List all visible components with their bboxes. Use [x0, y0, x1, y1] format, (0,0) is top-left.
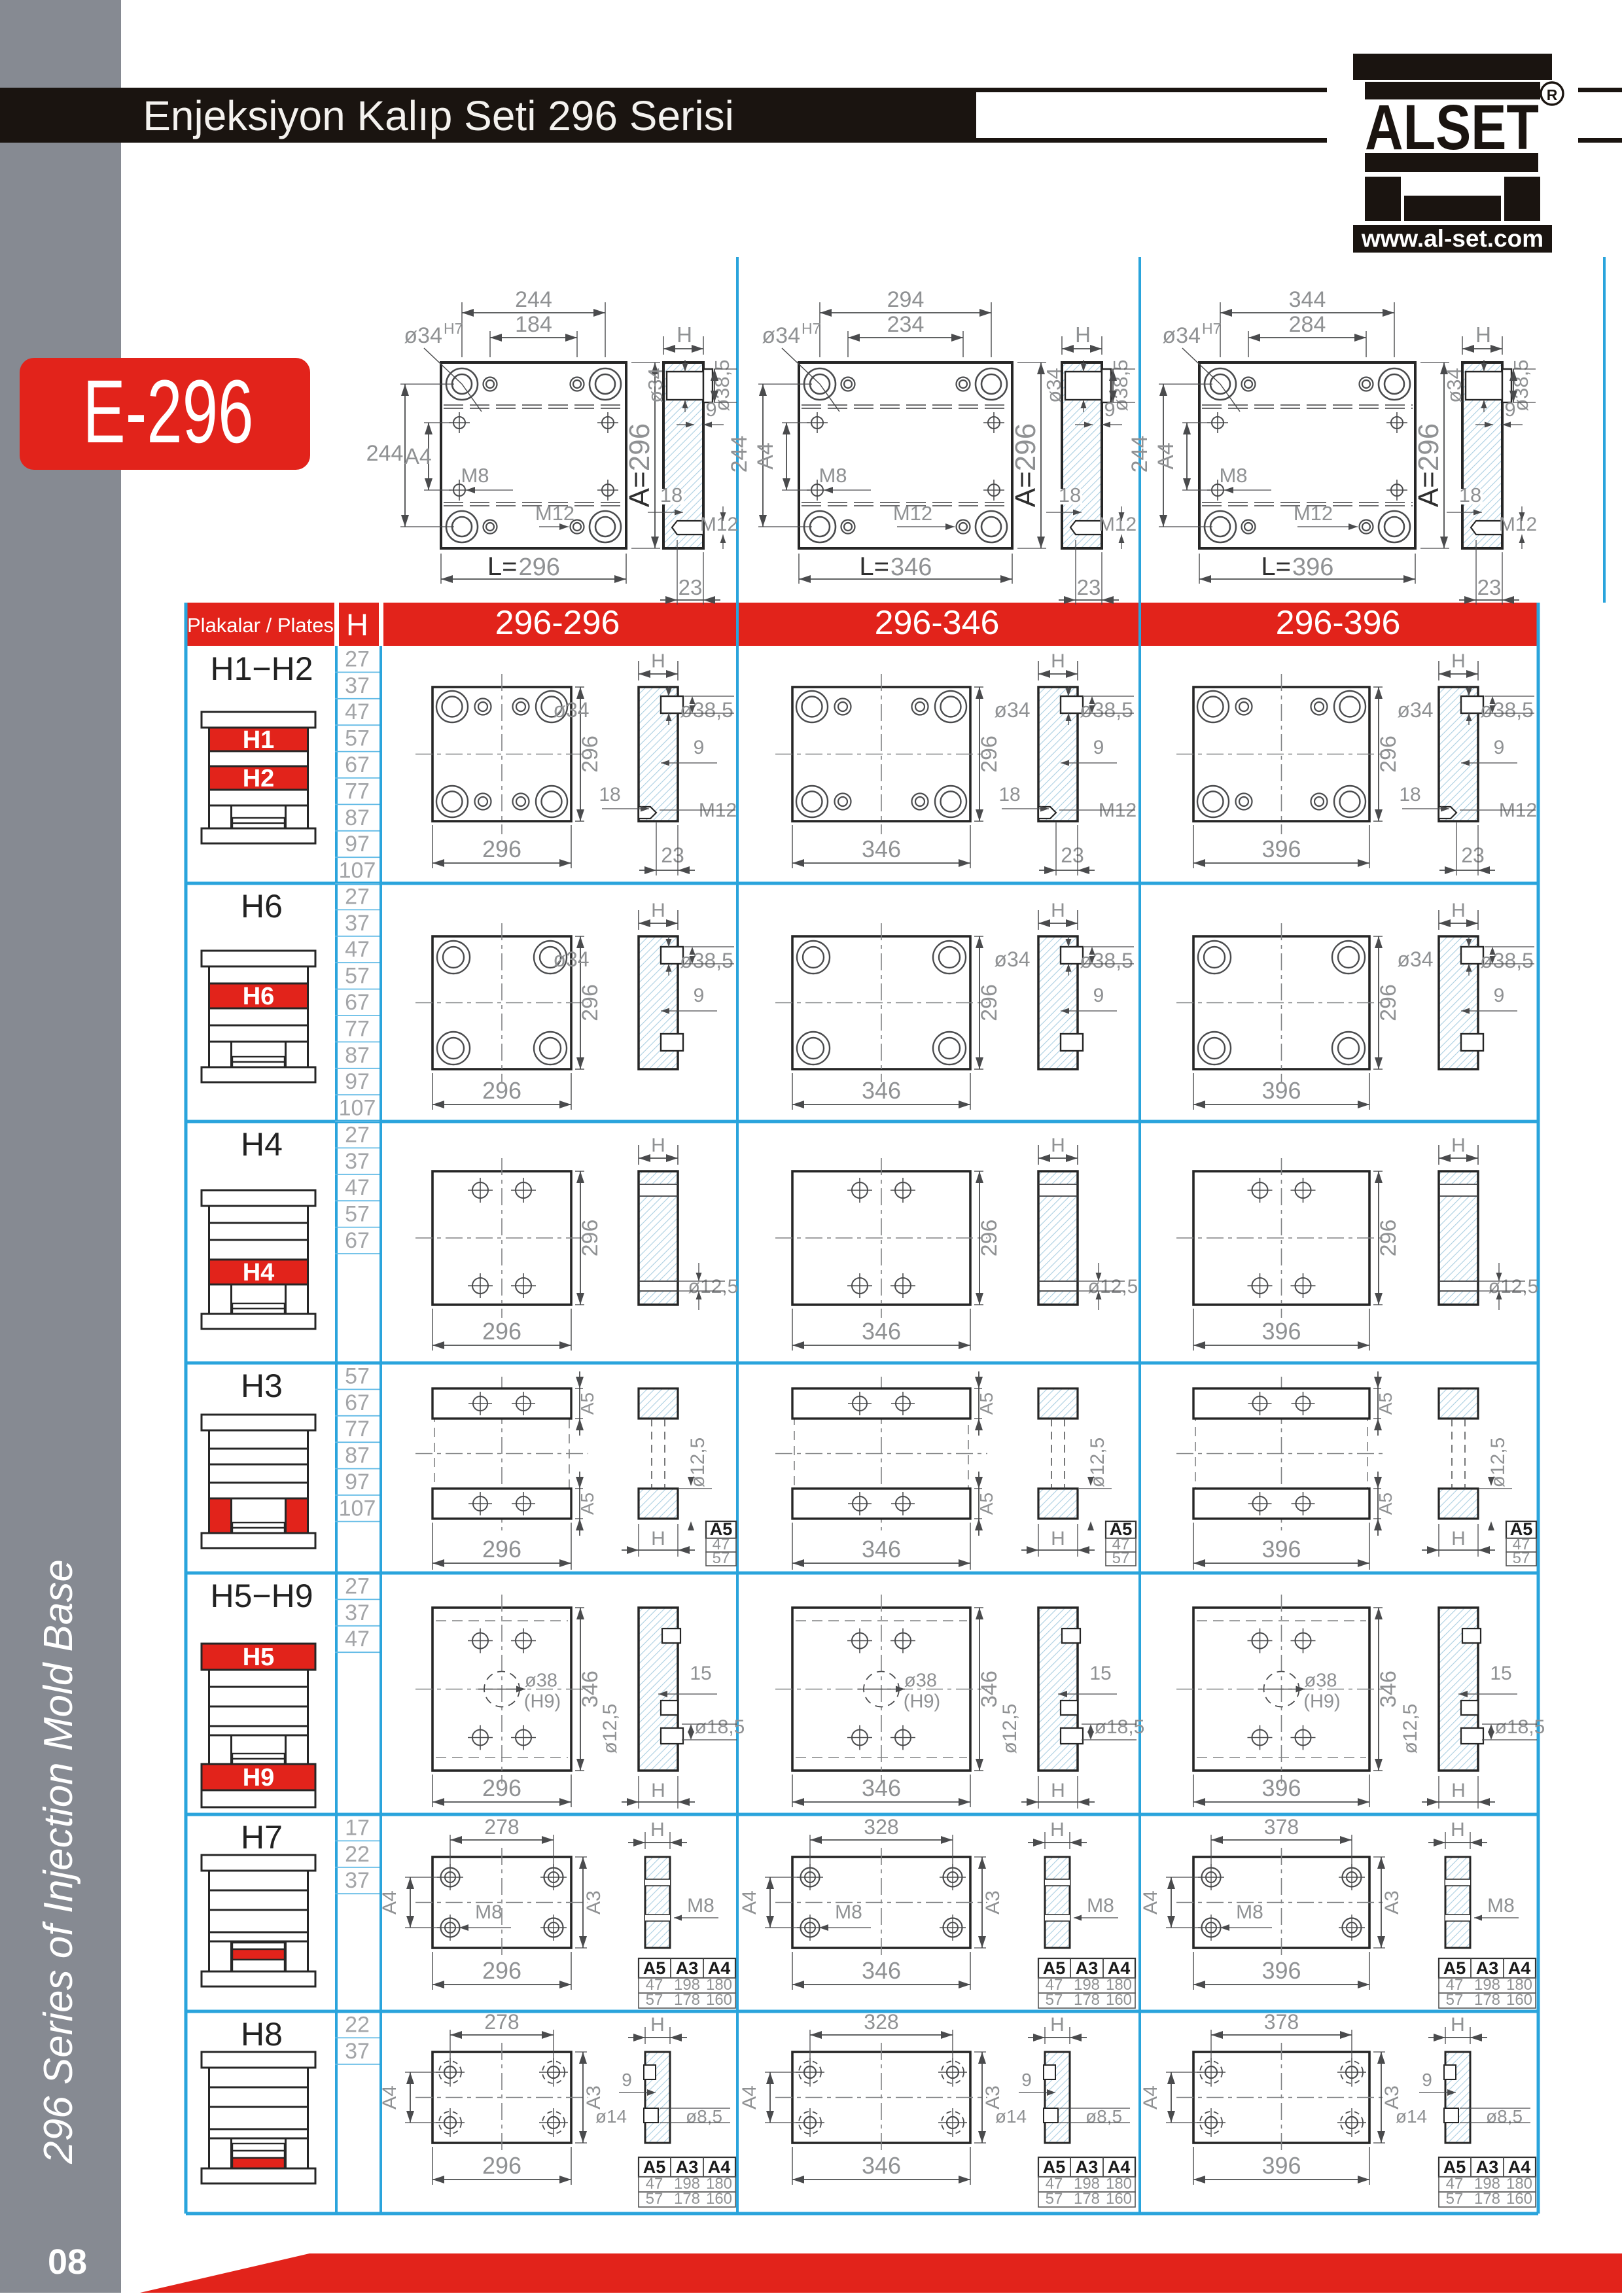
- svg-text:ø38: ø38: [904, 1670, 937, 1691]
- svg-text:107: 107: [339, 1496, 376, 1521]
- svg-text:(H9): (H9): [1303, 1691, 1340, 1712]
- svg-text:ø34: ø34: [1162, 323, 1201, 348]
- svg-text:396: 396: [1261, 1536, 1301, 1563]
- svg-text:296: 296: [482, 1318, 521, 1345]
- svg-text:H4: H4: [241, 1126, 283, 1163]
- svg-text:296: 296: [578, 1220, 603, 1257]
- svg-text:H: H: [1451, 2014, 1465, 2036]
- svg-text:18: 18: [1399, 784, 1420, 805]
- svg-text:9: 9: [1422, 2070, 1432, 2090]
- svg-text:18: 18: [1059, 484, 1081, 506]
- svg-text:H5−H9: H5−H9: [210, 1578, 313, 1614]
- svg-text:ø34: ø34: [553, 698, 589, 722]
- svg-text:H: H: [1051, 1135, 1065, 1156]
- svg-text:18: 18: [660, 484, 682, 506]
- svg-text:27: 27: [345, 1574, 370, 1598]
- svg-text:A=296: A=296: [624, 423, 656, 507]
- svg-text:H: H: [1050, 2014, 1065, 2036]
- svg-text:M8: M8: [475, 1901, 502, 1923]
- svg-text:ø14: ø14: [595, 2106, 627, 2127]
- svg-text:378: 378: [1264, 2010, 1299, 2034]
- svg-text:9: 9: [694, 737, 705, 758]
- svg-text:L=: L=: [487, 552, 518, 581]
- svg-text:A4: A4: [739, 2085, 760, 2110]
- svg-text:A=296: A=296: [1413, 423, 1445, 507]
- svg-text:57: 57: [1112, 1549, 1130, 1567]
- svg-text:23: 23: [1077, 575, 1101, 599]
- svg-text:A4: A4: [1108, 2157, 1131, 2177]
- svg-text:396: 396: [1261, 1077, 1301, 1104]
- svg-text:97: 97: [345, 1470, 370, 1494]
- svg-text:47: 47: [345, 937, 370, 962]
- svg-text:296: 296: [519, 554, 560, 581]
- svg-text:396: 396: [1261, 1775, 1301, 1801]
- svg-text:H: H: [651, 1135, 665, 1156]
- svg-text:77: 77: [345, 1417, 370, 1441]
- svg-text:27: 27: [345, 646, 370, 671]
- svg-text:15: 15: [1490, 1663, 1511, 1684]
- svg-text:160: 160: [1506, 1991, 1532, 2009]
- svg-text:97: 97: [345, 1069, 370, 1094]
- svg-text:396: 396: [1261, 1957, 1301, 1984]
- svg-text:A4: A4: [1508, 1958, 1531, 1978]
- svg-text:57: 57: [1046, 1991, 1063, 2009]
- svg-text:328: 328: [864, 2010, 898, 2034]
- svg-text:E-296: E-296: [83, 362, 254, 462]
- svg-text:ALSET: ALSET: [1365, 92, 1539, 163]
- svg-text:M8: M8: [687, 1895, 714, 1916]
- svg-text:296: 296: [482, 1957, 521, 1984]
- svg-text:37: 37: [345, 2039, 370, 2064]
- svg-text:9: 9: [1093, 985, 1104, 1006]
- svg-text:M8: M8: [1087, 1895, 1114, 1916]
- svg-text:A4: A4: [708, 1958, 731, 1978]
- svg-text:A=296: A=296: [1010, 423, 1042, 507]
- svg-text:A3: A3: [982, 1890, 1004, 1915]
- svg-text:H: H: [1051, 1780, 1065, 1801]
- svg-text:346: 346: [1376, 1670, 1401, 1708]
- svg-text:47: 47: [345, 1175, 370, 1200]
- svg-text:H: H: [651, 650, 665, 672]
- svg-text:57: 57: [1446, 1991, 1464, 2009]
- svg-text:296-346: 296-346: [875, 604, 1000, 642]
- svg-text:A4: A4: [1154, 442, 1178, 470]
- svg-text:L=: L=: [1261, 552, 1291, 581]
- svg-text:ø38: ø38: [525, 1670, 557, 1691]
- svg-text:H: H: [677, 323, 692, 347]
- svg-text:A5: A5: [1443, 2157, 1466, 2177]
- svg-text:9: 9: [1504, 398, 1515, 421]
- svg-text:296-396: 296-396: [1276, 604, 1401, 642]
- svg-text:A5: A5: [1043, 2157, 1066, 2177]
- svg-text:346: 346: [977, 1670, 1002, 1708]
- svg-text:ø34: ø34: [994, 947, 1030, 971]
- svg-text:A3: A3: [676, 2157, 699, 2177]
- svg-text:H2: H2: [243, 765, 275, 792]
- svg-text:H: H: [651, 900, 665, 921]
- svg-text:294: 294: [887, 287, 925, 312]
- svg-text:H: H: [346, 607, 368, 642]
- svg-text:M12: M12: [1499, 514, 1537, 535]
- svg-text:178: 178: [1074, 2190, 1100, 2208]
- svg-text:77: 77: [345, 779, 370, 804]
- svg-text:107: 107: [339, 858, 376, 883]
- svg-text:23: 23: [1477, 575, 1502, 599]
- svg-text:A4: A4: [379, 1890, 400, 1915]
- svg-text:H: H: [651, 1780, 665, 1801]
- svg-text:87: 87: [345, 1443, 370, 1468]
- svg-text:M8: M8: [1236, 1901, 1263, 1923]
- svg-text:M8: M8: [835, 1901, 862, 1923]
- svg-text:9: 9: [705, 398, 716, 421]
- svg-text:M12: M12: [700, 514, 738, 535]
- svg-text:244: 244: [515, 287, 552, 312]
- svg-text:A3: A3: [1381, 1890, 1403, 1915]
- svg-text:57: 57: [345, 1202, 370, 1227]
- svg-text:A3: A3: [1476, 2157, 1499, 2177]
- svg-text:H: H: [1475, 323, 1491, 347]
- svg-text:ø34: ø34: [1443, 368, 1466, 402]
- svg-text:296-296: 296-296: [495, 604, 620, 642]
- svg-text:A5: A5: [1043, 1958, 1066, 1978]
- svg-text:(H9): (H9): [904, 1691, 940, 1712]
- svg-text:278: 278: [484, 1815, 519, 1839]
- svg-text:378: 378: [1264, 1815, 1299, 1839]
- svg-text:346: 346: [862, 1318, 901, 1345]
- svg-text:ø18,5: ø18,5: [1095, 1716, 1145, 1738]
- svg-text:9: 9: [622, 2070, 632, 2090]
- svg-text:346: 346: [862, 2152, 901, 2179]
- svg-text:396: 396: [1261, 836, 1301, 862]
- svg-text:A4: A4: [1508, 2157, 1531, 2177]
- svg-text:234: 234: [887, 312, 925, 337]
- svg-text:M8: M8: [819, 464, 847, 487]
- svg-text:H: H: [1451, 900, 1466, 921]
- svg-text:296: 296: [482, 836, 521, 862]
- svg-text:22: 22: [345, 1842, 370, 1867]
- svg-text:296: 296: [482, 1775, 521, 1801]
- svg-text:ø38,5: ø38,5: [680, 698, 733, 722]
- svg-text:57: 57: [1446, 2190, 1464, 2208]
- svg-text:H: H: [651, 1528, 665, 1549]
- svg-text:A4: A4: [379, 2085, 400, 2110]
- svg-text:ø14: ø14: [1396, 2106, 1427, 2127]
- svg-text:18: 18: [998, 784, 1020, 805]
- svg-text:H: H: [1051, 650, 1065, 672]
- svg-text:H: H: [1451, 1819, 1465, 1841]
- svg-text:(H9): (H9): [524, 1691, 561, 1712]
- svg-text:A3: A3: [1076, 2157, 1099, 2177]
- svg-text:15: 15: [1089, 1663, 1111, 1684]
- svg-text:M8: M8: [1219, 464, 1247, 487]
- svg-text:178: 178: [1074, 1991, 1100, 2009]
- svg-text:87: 87: [345, 1043, 370, 1068]
- svg-text:296: 296: [977, 984, 1002, 1021]
- svg-text:H4: H4: [243, 1259, 275, 1286]
- svg-text:H7: H7: [1202, 320, 1221, 337]
- svg-text:H: H: [1451, 1780, 1466, 1801]
- svg-text:18: 18: [1459, 484, 1481, 506]
- svg-text:9: 9: [1494, 985, 1505, 1006]
- svg-text:ø38,5: ø38,5: [1480, 949, 1534, 972]
- svg-text:A4: A4: [753, 442, 778, 470]
- svg-text:77: 77: [345, 1016, 370, 1041]
- svg-text:160: 160: [706, 2190, 732, 2208]
- svg-text:87: 87: [345, 805, 370, 830]
- svg-text:244: 244: [1127, 436, 1152, 473]
- svg-text:M12: M12: [893, 502, 932, 525]
- svg-text:H6: H6: [243, 983, 275, 1010]
- svg-text:M12: M12: [535, 502, 574, 525]
- svg-text:37: 37: [345, 1868, 370, 1893]
- svg-text:ø34: ø34: [404, 323, 442, 348]
- svg-text:328: 328: [864, 1815, 898, 1839]
- svg-text:A5: A5: [1443, 1958, 1466, 1978]
- svg-text:9: 9: [1104, 398, 1115, 421]
- svg-text:178: 178: [674, 1991, 700, 2009]
- svg-text:47: 47: [345, 699, 370, 724]
- svg-text:A3: A3: [1476, 1958, 1499, 1978]
- svg-text:178: 178: [674, 2190, 700, 2208]
- svg-text:244: 244: [727, 436, 752, 473]
- svg-text:ø18,5: ø18,5: [1495, 1716, 1545, 1738]
- svg-text:27: 27: [345, 1122, 370, 1147]
- svg-text:ø34: ø34: [762, 323, 800, 348]
- svg-text:A5: A5: [643, 2157, 666, 2177]
- svg-text:M12: M12: [1294, 502, 1333, 525]
- svg-text:284: 284: [1289, 312, 1326, 337]
- svg-text:15: 15: [690, 1663, 711, 1684]
- svg-text:H: H: [1051, 900, 1065, 921]
- svg-text:A4: A4: [1140, 1890, 1161, 1915]
- svg-text:H: H: [650, 1819, 665, 1841]
- svg-text:57: 57: [345, 1364, 370, 1388]
- svg-text:396: 396: [1261, 2152, 1301, 2179]
- svg-text:A5: A5: [643, 1958, 666, 1978]
- svg-text:296: 296: [977, 1220, 1002, 1257]
- svg-text:H6: H6: [241, 888, 283, 925]
- svg-text:A3: A3: [1076, 1958, 1099, 1978]
- svg-text:107: 107: [339, 1096, 376, 1121]
- svg-text:H: H: [1451, 1135, 1466, 1156]
- svg-text:27: 27: [345, 884, 370, 909]
- svg-text:184: 184: [515, 312, 552, 337]
- svg-text:22: 22: [345, 2012, 370, 2037]
- svg-text:ø8,5: ø8,5: [1085, 2106, 1122, 2127]
- svg-text:47: 47: [345, 1627, 370, 1651]
- svg-text:346: 346: [862, 1775, 901, 1801]
- svg-text:244: 244: [366, 441, 404, 466]
- svg-text:ø14: ø14: [995, 2106, 1027, 2127]
- svg-text:37: 37: [345, 911, 370, 936]
- svg-text:A4: A4: [1108, 1958, 1131, 1978]
- svg-text:ø34: ø34: [994, 698, 1030, 722]
- svg-text:www.al-set.com: www.al-set.com: [1361, 225, 1543, 252]
- svg-text:178: 178: [1474, 2190, 1500, 2208]
- svg-text:23: 23: [679, 575, 703, 599]
- svg-text:H: H: [1451, 1528, 1466, 1549]
- svg-text:23: 23: [661, 843, 684, 867]
- svg-text:H5: H5: [243, 1644, 275, 1671]
- svg-text:H3: H3: [241, 1368, 283, 1404]
- svg-text:H7: H7: [241, 1819, 283, 1856]
- svg-text:296 Series of Injection Mold B: 296 Series of Injection Mold Base: [36, 1559, 81, 2164]
- svg-text:M8: M8: [1487, 1895, 1515, 1916]
- svg-text:346: 346: [862, 836, 901, 862]
- svg-text:57: 57: [646, 1991, 663, 2009]
- svg-text:37: 37: [345, 1600, 370, 1625]
- svg-text:67: 67: [345, 1390, 370, 1415]
- svg-text:17: 17: [345, 1815, 370, 1840]
- svg-text:346: 346: [890, 554, 932, 581]
- svg-text:57: 57: [646, 2190, 663, 2208]
- svg-text:ø34: ø34: [1397, 947, 1433, 971]
- svg-text:ø8,5: ø8,5: [686, 2106, 722, 2127]
- svg-text:296: 296: [578, 735, 603, 773]
- svg-text:ø12,5: ø12,5: [1489, 1276, 1539, 1298]
- svg-text:57: 57: [713, 1549, 730, 1567]
- svg-text:ø12,5: ø12,5: [599, 1704, 621, 1754]
- svg-text:346: 346: [862, 1957, 901, 1984]
- svg-text:160: 160: [706, 1991, 732, 2009]
- svg-text:23: 23: [1461, 843, 1485, 867]
- svg-text:ø38,5: ø38,5: [1480, 698, 1534, 722]
- svg-text:08: 08: [48, 2242, 87, 2282]
- svg-text:Enjeksiyon Kalıp Seti 296 Seri: Enjeksiyon Kalıp Seti 296 Serisi: [143, 92, 734, 139]
- svg-text:ø12,5: ø12,5: [999, 1704, 1021, 1754]
- svg-text:H: H: [1451, 650, 1466, 672]
- svg-text:ø38,5: ø38,5: [1080, 949, 1133, 972]
- svg-text:57: 57: [1513, 1549, 1530, 1567]
- svg-text:A3: A3: [583, 1890, 605, 1915]
- svg-text:67: 67: [345, 1228, 370, 1253]
- svg-text:160: 160: [1106, 1991, 1132, 2009]
- svg-text:23: 23: [1061, 843, 1084, 867]
- svg-text:A4: A4: [739, 1890, 760, 1915]
- svg-text:67: 67: [345, 990, 370, 1015]
- svg-text:178: 178: [1474, 1991, 1500, 2009]
- svg-text:H9: H9: [243, 1764, 275, 1792]
- svg-text:346: 346: [862, 1077, 901, 1104]
- svg-text:296: 296: [482, 1536, 521, 1563]
- svg-text:57: 57: [345, 964, 370, 989]
- svg-text:ø34: ø34: [644, 368, 667, 402]
- svg-text:H1: H1: [243, 726, 275, 754]
- svg-text:296: 296: [482, 2152, 521, 2179]
- svg-text:ø34: ø34: [1042, 368, 1065, 402]
- svg-text:Plakalar / Plates: Plakalar / Plates: [187, 614, 334, 637]
- svg-text:296: 296: [578, 984, 603, 1021]
- svg-text:H: H: [650, 2014, 665, 2036]
- svg-text:H7: H7: [802, 320, 820, 337]
- svg-text:9: 9: [1093, 737, 1104, 758]
- svg-text:A3: A3: [676, 1958, 699, 1978]
- svg-text:296: 296: [977, 735, 1002, 773]
- svg-text:37: 37: [345, 1149, 370, 1174]
- svg-text:67: 67: [345, 752, 370, 777]
- svg-text:M12: M12: [1099, 514, 1137, 535]
- svg-text:344: 344: [1289, 287, 1326, 312]
- svg-text:H: H: [1050, 1819, 1065, 1841]
- svg-text:160: 160: [1106, 2190, 1132, 2208]
- svg-text:ø18,5: ø18,5: [695, 1716, 745, 1738]
- svg-text:97: 97: [345, 832, 370, 857]
- svg-text:346: 346: [578, 1670, 603, 1708]
- svg-text:L=: L=: [859, 552, 889, 581]
- svg-text:9: 9: [694, 985, 705, 1006]
- svg-text:160: 160: [1506, 2190, 1532, 2208]
- svg-text:ø8,5: ø8,5: [1486, 2106, 1523, 2127]
- svg-text:A4: A4: [1140, 2085, 1161, 2110]
- svg-text:ø12,5: ø12,5: [688, 1276, 739, 1298]
- svg-text:396: 396: [1261, 1318, 1301, 1345]
- svg-text:ø38,5: ø38,5: [680, 949, 733, 972]
- svg-text:A4: A4: [404, 444, 432, 469]
- svg-text:H7: H7: [444, 320, 463, 337]
- svg-text:ø34: ø34: [1397, 698, 1433, 722]
- svg-text:ø12,5: ø12,5: [1088, 1276, 1138, 1298]
- svg-text:346: 346: [862, 1536, 901, 1563]
- svg-text:278: 278: [484, 2010, 519, 2034]
- svg-text:R: R: [1547, 86, 1558, 103]
- svg-text:A4: A4: [708, 2157, 731, 2177]
- svg-text:9: 9: [1494, 737, 1505, 758]
- svg-text:296: 296: [482, 1077, 521, 1104]
- svg-text:296: 296: [1376, 735, 1401, 773]
- svg-text:9: 9: [1021, 2070, 1032, 2090]
- svg-text:ø34: ø34: [553, 947, 589, 971]
- svg-text:H1−H2: H1−H2: [210, 650, 313, 687]
- svg-text:ø38,5: ø38,5: [1080, 698, 1133, 722]
- svg-text:396: 396: [1292, 554, 1333, 581]
- svg-text:H8: H8: [241, 2016, 283, 2053]
- svg-text:ø12,5: ø12,5: [1400, 1704, 1421, 1754]
- svg-text:57: 57: [345, 726, 370, 751]
- svg-text:M8: M8: [461, 464, 489, 487]
- svg-text:18: 18: [599, 784, 620, 805]
- svg-text:ø38: ø38: [1305, 1670, 1337, 1691]
- svg-text:57: 57: [1046, 2190, 1063, 2208]
- svg-text:296: 296: [1376, 984, 1401, 1021]
- svg-text:37: 37: [345, 673, 370, 698]
- svg-text:296: 296: [1376, 1220, 1401, 1257]
- svg-text:H: H: [1075, 323, 1091, 347]
- svg-text:H: H: [1051, 1528, 1065, 1549]
